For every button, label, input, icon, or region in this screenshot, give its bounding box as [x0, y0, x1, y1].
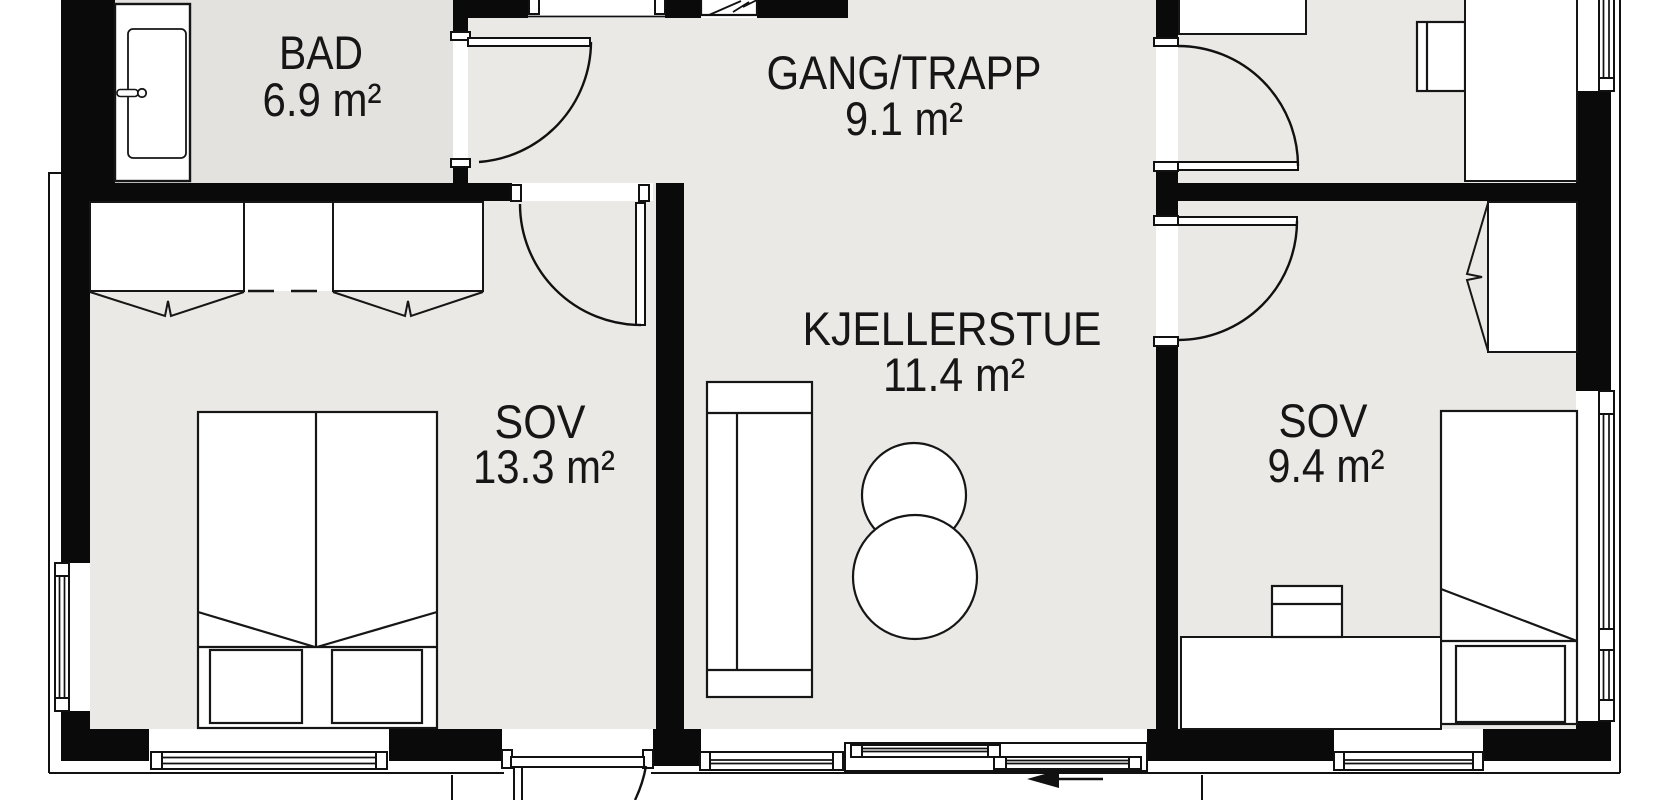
svg-text:11.4 m²: 11.4 m²: [883, 348, 1025, 401]
svg-text:6.9 m²: 6.9 m²: [263, 73, 382, 126]
svg-text:9.1 m²: 9.1 m²: [845, 92, 963, 145]
svg-text:BAD: BAD: [279, 26, 363, 79]
svg-text:13.3 m²: 13.3 m²: [473, 440, 615, 493]
svg-text:9.4 m²: 9.4 m²: [1268, 439, 1385, 492]
